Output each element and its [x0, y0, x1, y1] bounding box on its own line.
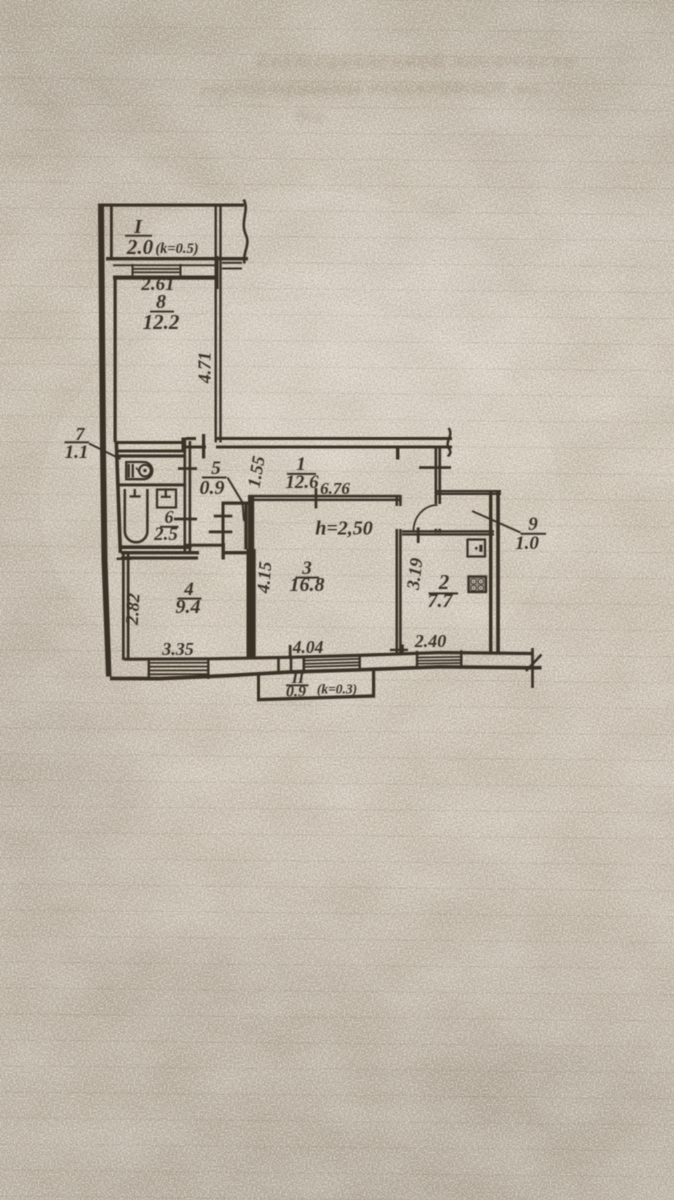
svg-text:16.8: 16.8 — [290, 574, 325, 596]
svg-text:9.4: 9.4 — [176, 596, 201, 618]
svg-text:12.6: 12.6 — [285, 472, 319, 493]
svg-text:7: 7 — [76, 424, 86, 444]
svg-text:4.04: 4.04 — [292, 637, 324, 657]
svg-text:2.5: 2.5 — [153, 524, 178, 545]
svg-text:1.1: 1.1 — [65, 442, 89, 463]
svg-text:12.2: 12.2 — [143, 310, 180, 334]
svg-text:2.82: 2.82 — [122, 593, 144, 627]
svg-text:3.19: 3.19 — [403, 557, 427, 592]
svg-text:(k=0.3): (k=0.3) — [317, 682, 357, 697]
svg-text:9: 9 — [528, 514, 538, 535]
svg-text:0.9: 0.9 — [286, 684, 306, 701]
svg-text:4.71: 4.71 — [195, 352, 215, 385]
svg-text:(k=0.5): (k=0.5) — [155, 241, 198, 257]
svg-text:4.15: 4.15 — [253, 561, 275, 595]
svg-text:5: 5 — [211, 458, 221, 479]
svg-text:0.9: 0.9 — [200, 477, 225, 499]
svg-text:h=2,50: h=2,50 — [315, 518, 373, 540]
svg-text:7.7: 7.7 — [428, 590, 454, 612]
svg-text:1.0: 1.0 — [515, 533, 539, 554]
svg-text:2.0: 2.0 — [126, 235, 154, 259]
svg-text:3.35: 3.35 — [161, 639, 194, 659]
svg-text:6.76: 6.76 — [320, 479, 350, 498]
svg-text:2.40: 2.40 — [414, 631, 447, 651]
